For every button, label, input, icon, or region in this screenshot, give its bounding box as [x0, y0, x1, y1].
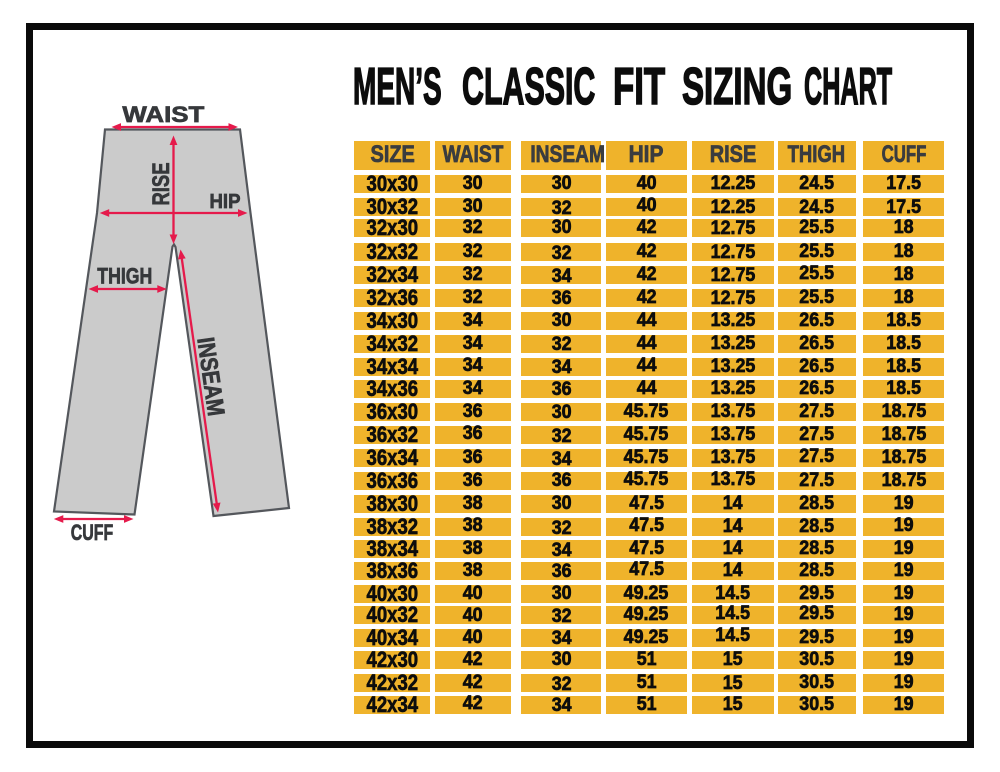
svg-text:WAIST: WAIST — [122, 102, 205, 127]
